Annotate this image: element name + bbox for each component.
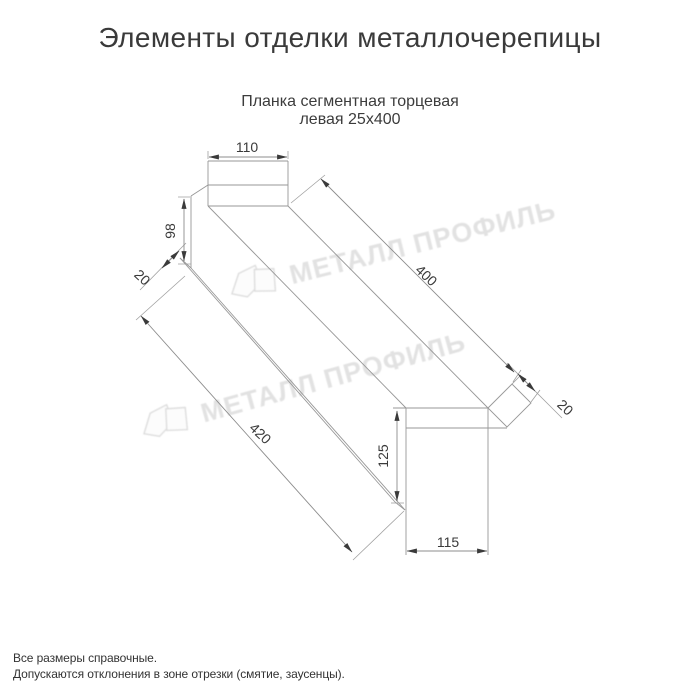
footnote-2: Допускаются отклонения в зоне отрезки (с… xyxy=(13,666,345,682)
footnote-1: Все размеры справочные. xyxy=(13,650,345,666)
dim-label-top-flange-width: 110 xyxy=(236,139,259,155)
dimension-lines xyxy=(141,157,535,552)
lower-cross-section xyxy=(393,384,531,555)
upper-cross-section xyxy=(180,161,288,268)
drawing-subtitle: Планка сегментная торцевая левая 25х400 xyxy=(0,93,700,129)
dim-label-lower-hem: 20 xyxy=(554,396,576,418)
subtitle-line-1: Планка сегментная торцевая xyxy=(0,93,700,111)
dim-label-total-length: 420 xyxy=(246,420,274,448)
footnotes: Все размеры справочные. Допускаются откл… xyxy=(13,650,345,682)
dim-label-upper-web-height: 98 xyxy=(162,223,178,239)
subtitle-line-2: левая 25х400 xyxy=(0,111,700,129)
strip-edges xyxy=(180,206,488,510)
page: МЕТАЛЛ ПРОФИЛЬ МЕТАЛЛ ПРОФИЛЬ xyxy=(0,0,700,700)
page-title: Элементы отделки металлочерепицы xyxy=(0,22,700,54)
dim-label-upper-hem: 20 xyxy=(131,266,153,288)
dim-label-bottom-flange-width: 115 xyxy=(437,534,460,550)
dim-label-lower-web-height: 125 xyxy=(375,444,391,468)
dim-label-flange-length: 400 xyxy=(412,262,440,290)
